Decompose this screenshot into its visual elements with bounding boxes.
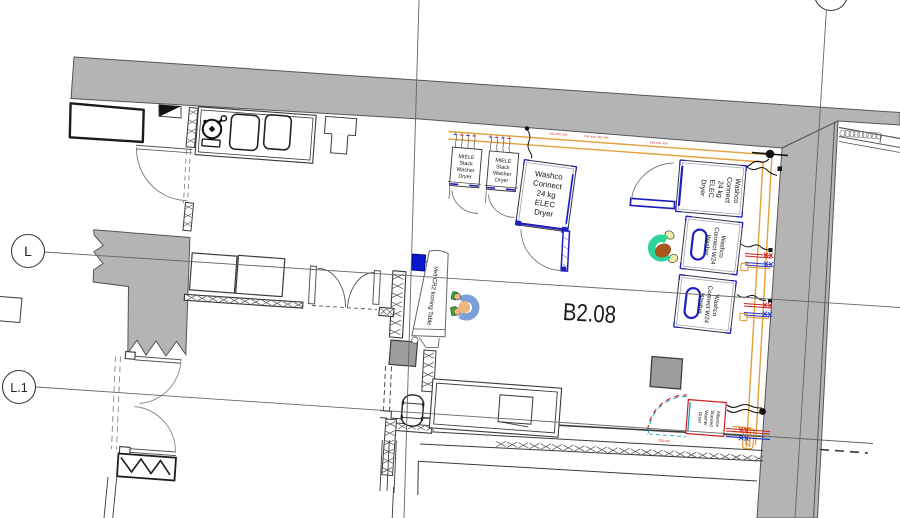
svg-text:L.1: L.1 — [10, 381, 27, 395]
svg-text:xxx xxx xxx: xxx xxx xxx — [549, 131, 568, 136]
svg-text:250 min: 250 min — [658, 439, 670, 444]
svg-text:Dryer: Dryer — [495, 177, 509, 184]
svg-text:B2.08: B2.08 — [562, 299, 617, 329]
svg-text:xxx xxx xxx xxx: xxx xxx xxx xxx — [584, 134, 609, 140]
svg-text:L: L — [24, 243, 32, 259]
svg-text:Dryer: Dryer — [458, 173, 472, 180]
svg-text:Dryer: Dryer — [697, 412, 703, 424]
svg-text:24 kg: 24 kg — [715, 180, 723, 198]
svg-text:xxx xxx xxx: xxx xxx xxx — [650, 140, 669, 145]
